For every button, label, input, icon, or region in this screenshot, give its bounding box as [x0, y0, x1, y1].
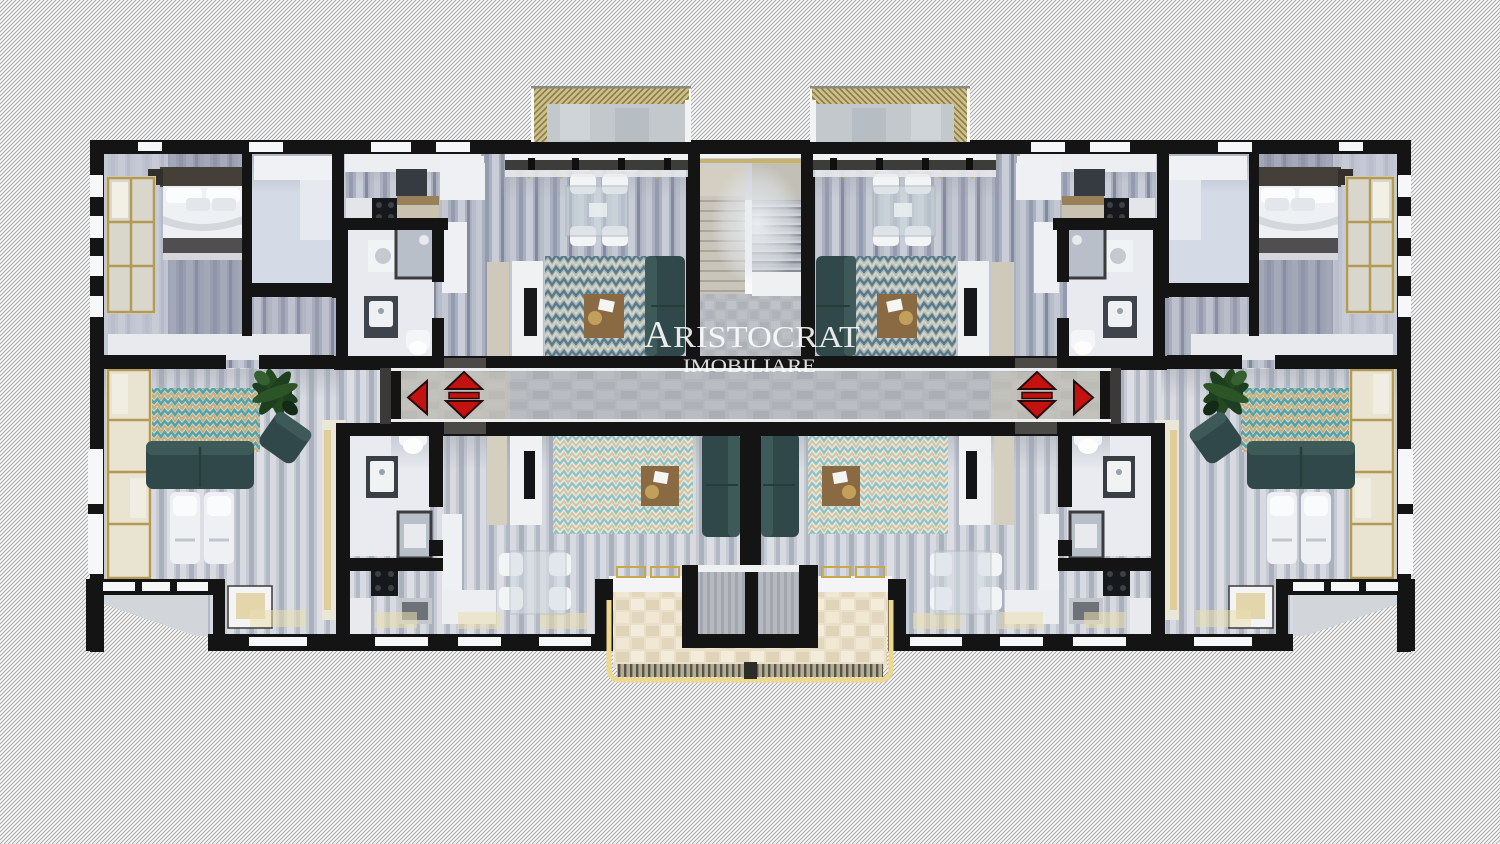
svg-text:A: A [644, 314, 672, 356]
svg-text:RISTOCRAT: RISTOCRAT [673, 319, 860, 354]
svg-text:IMOBILIARE: IMOBILIARE [683, 356, 816, 377]
